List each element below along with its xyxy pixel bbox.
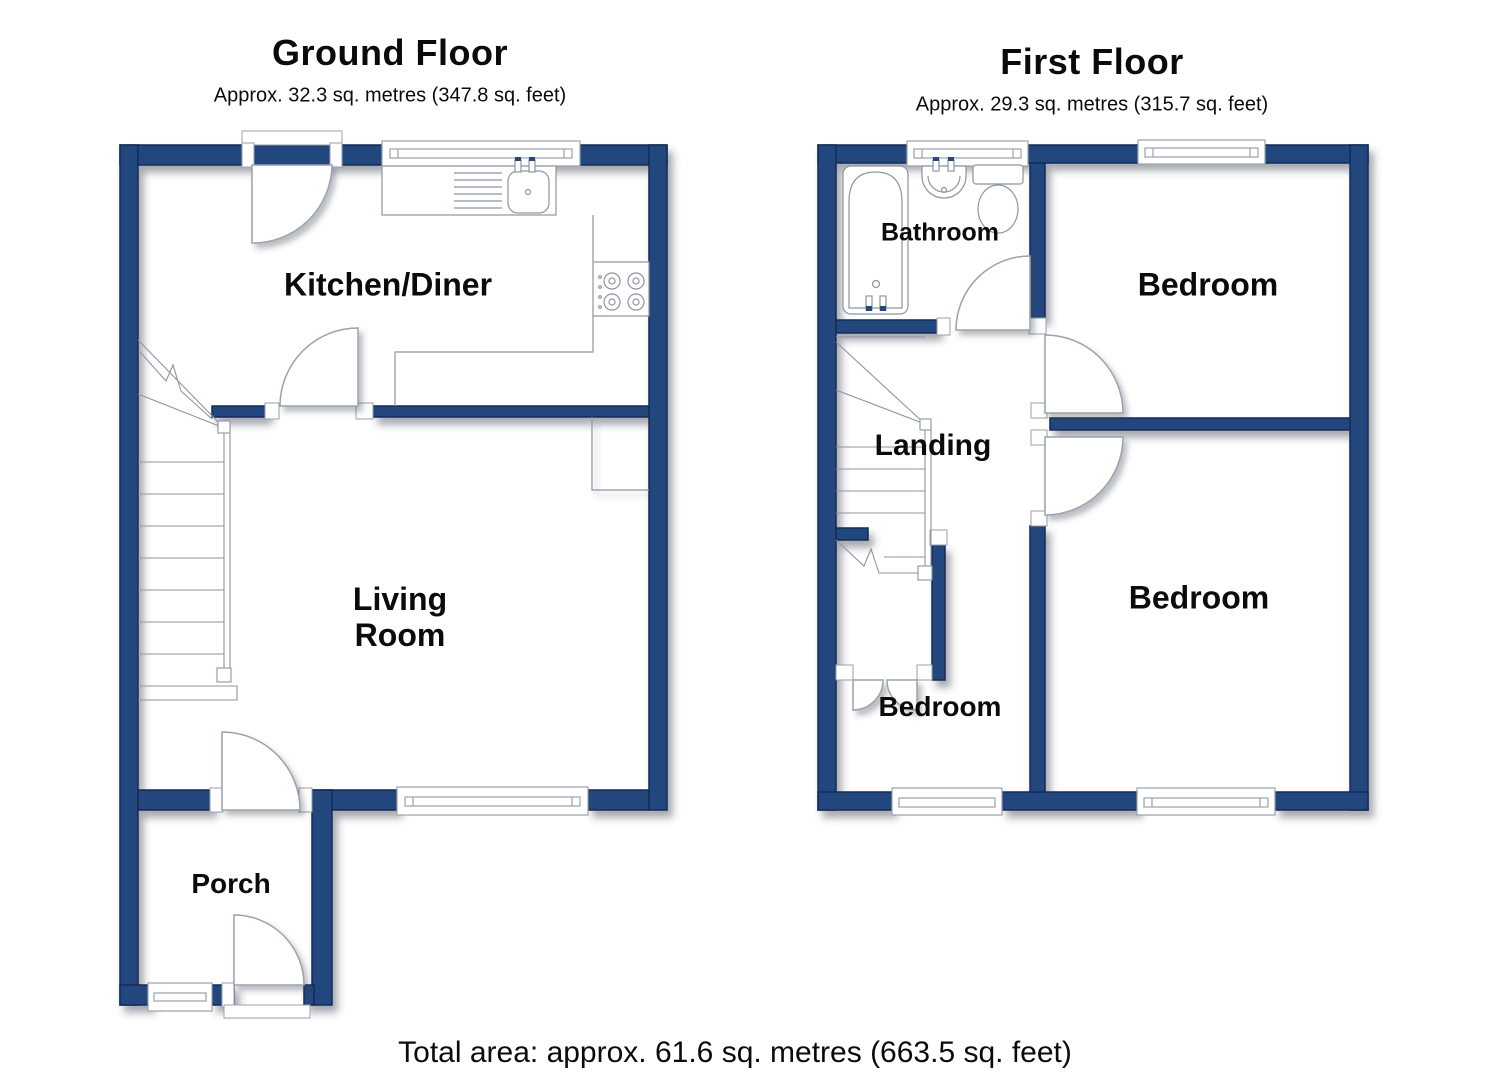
kitchen-fixtures: [382, 157, 649, 490]
window-living-room: [397, 787, 588, 815]
floorplan-page: Ground Floor Approx. 32.3 sq. metres (34…: [0, 0, 1485, 1080]
window-bedroom-bottom-left: [892, 788, 1002, 815]
door-frame-header: [242, 131, 342, 145]
room-label-landing: Landing: [875, 429, 992, 463]
window-kitchen: [382, 141, 580, 166]
kitchen-back-door: [252, 165, 332, 243]
bedroom-bottom-door: [1045, 437, 1123, 515]
window-bedroom-right: [1138, 140, 1265, 164]
living-porch-door: [222, 732, 300, 810]
stairs-newel-bottom: [918, 566, 932, 580]
room-label-bathroom: Bathroom: [881, 219, 999, 248]
first-floor-title: First Floor: [1000, 41, 1184, 83]
sink-bowl: [508, 171, 549, 213]
hob: [593, 262, 649, 316]
ground-floor-area: Approx. 32.3 sq. metres (347.8 sq. feet): [214, 85, 566, 108]
room-label-kitchen-diner: Kitchen/Diner: [284, 267, 492, 304]
stairs-newel-top: [218, 421, 230, 433]
window-porch: [148, 983, 212, 1011]
window-bedroom-bottom-right: [1137, 788, 1275, 815]
window-bathroom: [907, 141, 1028, 166]
bedroom-right-door: [1045, 335, 1123, 413]
first-floor-area: Approx. 29.3 sq. metres (315.7 sq. feet): [916, 94, 1268, 117]
floorplan-drawing: [0, 0, 1485, 1080]
room-label-bedroom-right: Bedroom: [1138, 267, 1278, 304]
stairs-ground-floor: [138, 340, 237, 700]
living-room-cupboard: [592, 417, 649, 490]
bathroom-door: [956, 256, 1030, 330]
sink-drainer-unit: [382, 157, 556, 215]
kitchen-living-door: [280, 328, 358, 406]
total-area-caption: Total area: approx. 61.6 sq. metres (663…: [398, 1036, 1072, 1070]
room-label-bedroom-bottom-right: Bedroom: [1129, 580, 1269, 617]
front-door: [234, 915, 304, 985]
worktop-edge: [395, 215, 593, 406]
room-label-porch: Porch: [191, 868, 270, 900]
room-label-bedroom-bottom-left: Bedroom: [879, 691, 1002, 723]
stairs-newel-bottom: [217, 668, 231, 682]
ground-floor-title: Ground Floor: [272, 32, 508, 74]
room-label-living-room: Living Room: [325, 582, 475, 654]
front-door-threshold: [224, 1005, 310, 1018]
